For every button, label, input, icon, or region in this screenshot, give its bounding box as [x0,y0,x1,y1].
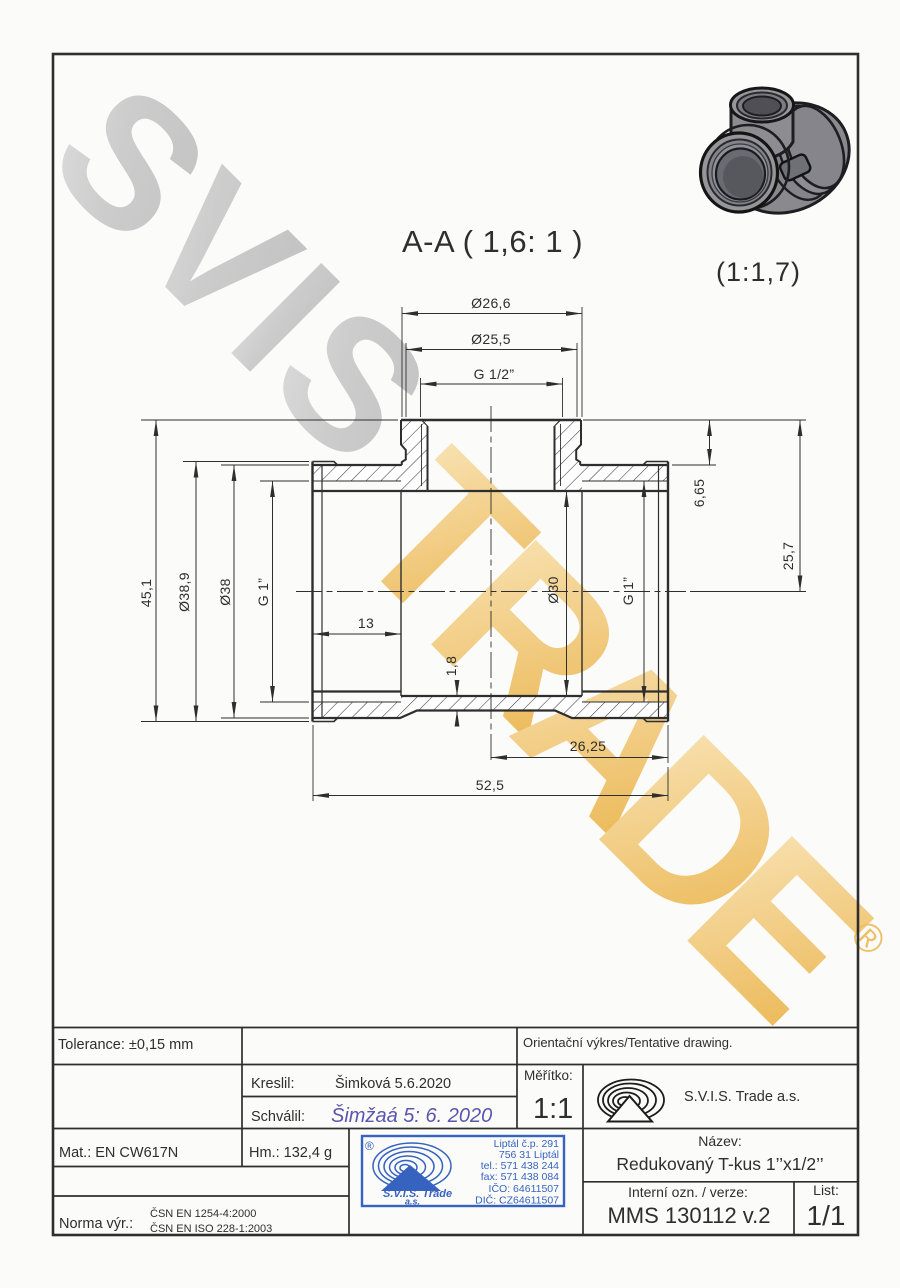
svg-text:G 1”: G 1” [620,577,636,605]
svg-text:Název:: Název: [698,1133,742,1149]
svg-text:G 1”: G 1” [255,578,271,606]
svg-text:S.V.I.S. Trade a.s.: S.V.I.S. Trade a.s. [684,1089,800,1105]
svg-text:Tolerance: ±0,15 mm: Tolerance: ±0,15 mm [58,1037,193,1053]
svg-text:ČSN EN 1254-4:2000: ČSN EN 1254-4:2000 [150,1207,256,1220]
svg-text:(1:1,7): (1:1,7) [716,257,801,287]
svg-text:Ø25,5: Ø25,5 [471,331,511,347]
svg-text:45,1: 45,1 [138,579,154,607]
svg-text:26,25: 26,25 [570,738,607,754]
svg-text:Šimková 5.6.2020: Šimková 5.6.2020 [335,1075,451,1092]
svg-text:52,5: 52,5 [476,777,504,793]
svg-text:List:: List: [813,1182,839,1198]
svg-text:ČSN EN ISO 228-1:2003: ČSN EN ISO 228-1:2003 [150,1222,272,1235]
svg-text:Kreslil:: Kreslil: [251,1076,295,1092]
svg-text:Schválil:: Schválil: [251,1109,305,1125]
svg-text:G 1/2”: G 1/2” [474,366,515,382]
svg-text:Interní ozn. / verze:: Interní ozn. / verze: [628,1184,748,1200]
svg-text:Hm.: 132,4 g: Hm.: 132,4 g [249,1145,332,1161]
svg-text:13: 13 [358,615,374,631]
svg-text:6,65: 6,65 [691,479,707,507]
svg-text:fax: 571 438 084: fax: 571 438 084 [481,1171,559,1183]
svg-text:Mat.: EN CW617N: Mat.: EN CW617N [59,1145,178,1161]
svg-text:Ø30: Ø30 [545,576,561,603]
svg-text:Ø26,6: Ø26,6 [471,295,511,311]
svg-text:a.s.: a.s. [405,1197,420,1207]
svg-text:1,8: 1,8 [443,656,459,676]
svg-text:MMS 130112 v.2: MMS 130112 v.2 [607,1203,770,1228]
svg-text:Norma výr.:: Norma výr.: [59,1216,133,1232]
svg-text:®: ® [365,1139,374,1153]
svg-text:1:1: 1:1 [533,1093,573,1125]
svg-text:25,7: 25,7 [780,542,796,570]
svg-text:DIČ: CZ64611507: DIČ: CZ64611507 [475,1194,559,1207]
svg-text:Šimžaá 5: 6. 2020: Šimžaá 5: 6. 2020 [331,1104,492,1127]
svg-text:Redukovaný T-kus 1’’x1/2’’: Redukovaný T-kus 1’’x1/2’’ [616,1154,823,1174]
svg-text:IČO: 64611507: IČO: 64611507 [489,1182,560,1195]
svg-text:Orientační výkres/Tentative dr: Orientační výkres/Tentative drawing. [523,1035,733,1050]
svg-text:Ø38: Ø38 [217,578,233,605]
svg-text:A-A ( 1,6: 1 ): A-A ( 1,6: 1 ) [402,224,583,259]
svg-text:1/1: 1/1 [807,1200,846,1231]
svg-text:Měřítko:: Měřítko: [524,1068,573,1083]
svg-text:Ø38,9: Ø38,9 [176,572,192,612]
